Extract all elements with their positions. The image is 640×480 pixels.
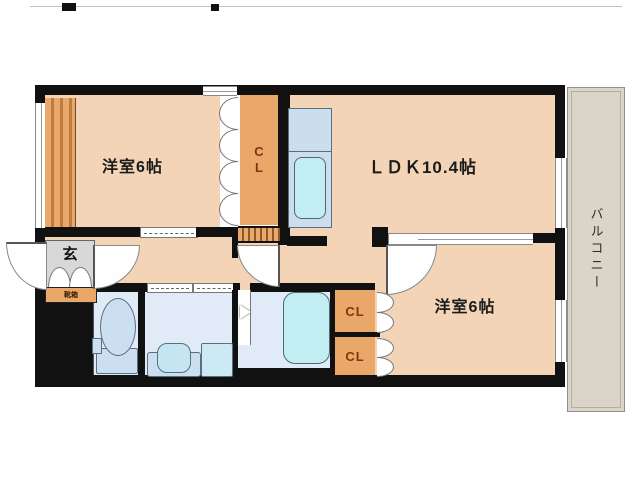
closet-bottom: CL [335, 337, 375, 375]
closet-top-label: CL [252, 144, 267, 176]
washing-machine-pan [201, 343, 233, 377]
wall-pillar-block [35, 295, 93, 387]
wall [35, 375, 565, 387]
window [555, 158, 567, 228]
front-door-arc [6, 242, 47, 290]
closet-top: CL [240, 95, 278, 225]
floor-plan: 洋室6帖 CL ＬＤＫ10.4帖 洋室6帖 CL CL バルコニー [0, 0, 640, 480]
shoe-cabinet: 靴箱 [45, 287, 97, 303]
wall [35, 85, 565, 95]
wall [45, 227, 140, 237]
toilet-flush-handle [92, 338, 102, 354]
sliding-door [140, 227, 198, 238]
wall [372, 227, 388, 247]
bath-folding-door-icon [240, 305, 251, 319]
sliding-door [193, 283, 235, 293]
wall [533, 233, 555, 243]
closet-bottom-label: CL [345, 349, 364, 364]
toilet-bowl [100, 298, 136, 356]
wall [196, 227, 232, 237]
balcony-label: バルコニー [587, 207, 606, 292]
bedroom2-label: 洋室6帖 [435, 293, 496, 317]
closet-mid-label: CL [345, 304, 364, 319]
washbasin-bowl [157, 343, 191, 373]
wall [138, 290, 145, 375]
door-leaf [388, 233, 420, 245]
bathtub [283, 292, 330, 364]
wall [238, 368, 335, 375]
balcony: バルコニー [567, 87, 625, 412]
scan-line-artifact [30, 6, 622, 7]
ldk-label: ＬＤＫ10.4帖 [368, 153, 477, 178]
window [555, 300, 567, 362]
wall [335, 332, 380, 337]
artifact-mark [62, 3, 76, 11]
wall [335, 283, 375, 290]
wall-kitchen-stub [287, 236, 327, 246]
shoe-cabinet-label: 靴箱 [64, 290, 78, 300]
artifact-mark [211, 4, 219, 11]
sliding-door [147, 283, 193, 293]
wall [330, 283, 335, 375]
kitchen-counter-divider [289, 151, 331, 152]
wall [250, 283, 335, 292]
entrance-label: 玄 [46, 243, 94, 264]
storage-stripes [45, 98, 76, 232]
closet-mid: CL [335, 290, 375, 332]
window [418, 233, 533, 245]
bedroom1-label: 洋室6帖 [102, 153, 163, 177]
storage-hatch [238, 226, 280, 243]
window [203, 86, 237, 96]
kitchen-sink [294, 157, 326, 219]
